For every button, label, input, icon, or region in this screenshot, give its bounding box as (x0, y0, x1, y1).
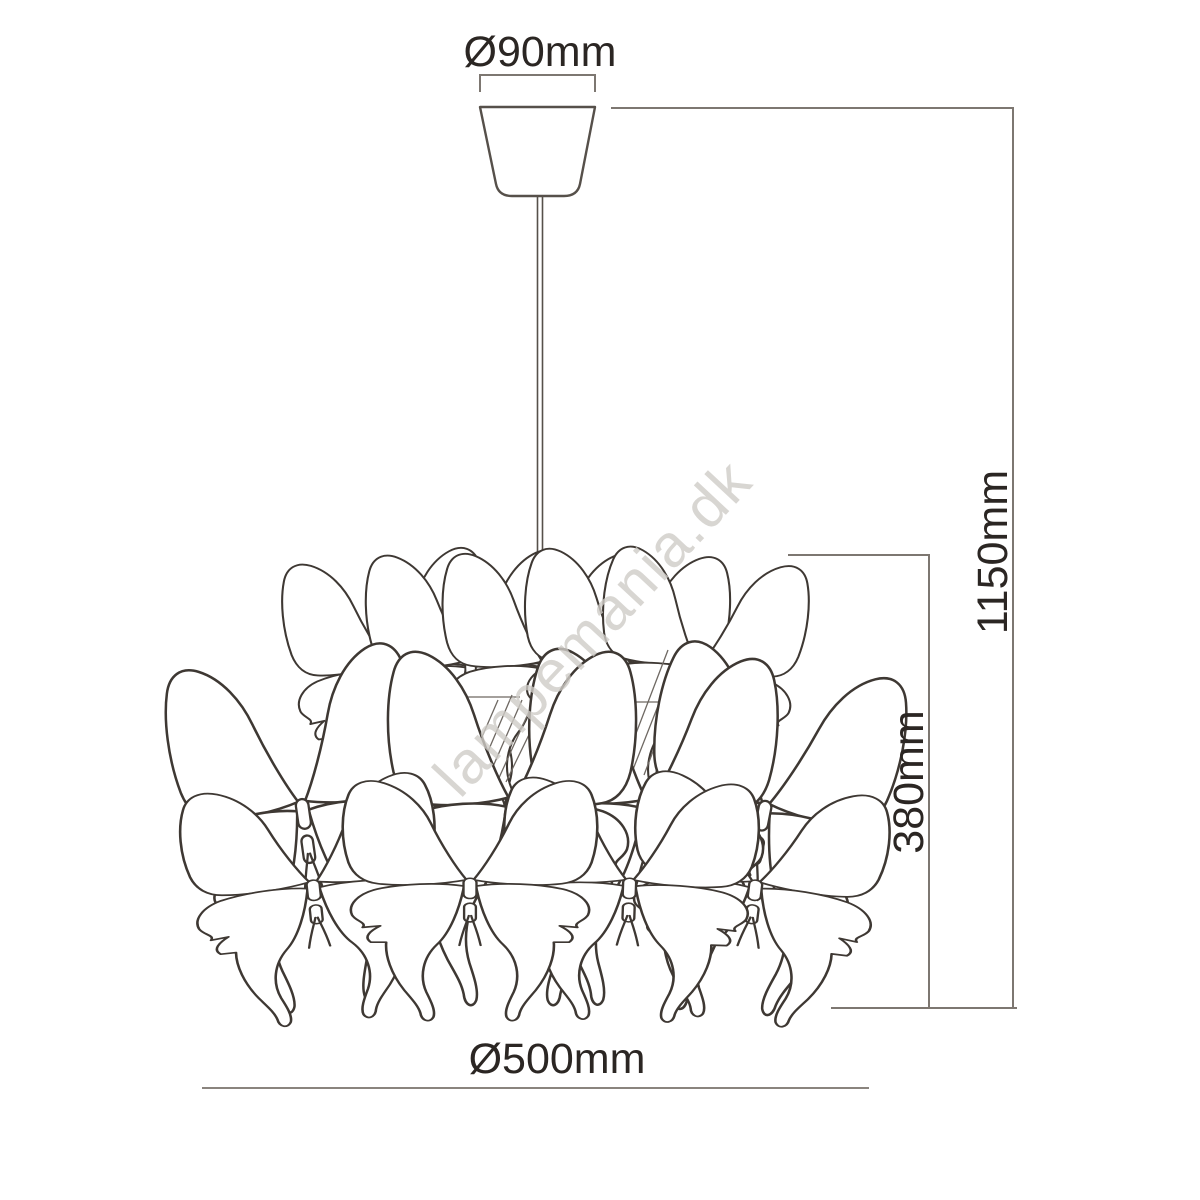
canopy-diameter-label: Ø90mm (464, 28, 617, 76)
total-height-label: 1150mm (969, 470, 1017, 634)
shade-diameter-label: Ø500mm (469, 1035, 646, 1083)
pendant-lamp-dimension-diagram: Ø90mm 1150mm 380mm Ø500mm lampemania.dk (0, 0, 1200, 1200)
ceiling-canopy-cup (480, 107, 595, 196)
technical-drawing-canvas: Ø90mm 1150mm 380mm Ø500mm lampemania.dk (0, 0, 1200, 1200)
shade-height-label: 380mm (885, 710, 933, 853)
